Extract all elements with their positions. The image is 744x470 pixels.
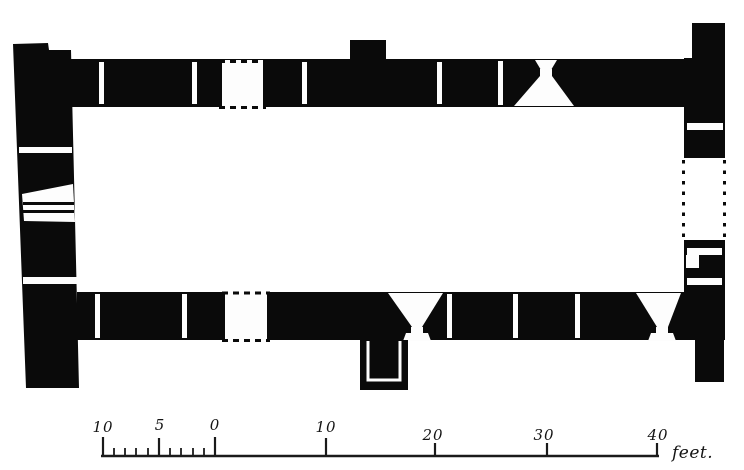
projection-south: [360, 340, 408, 390]
scale-label-30: 30: [533, 426, 554, 444]
corner-southeast: [695, 340, 724, 382]
doorway-west-step-line: [23, 210, 74, 213]
wall-recess: [686, 255, 699, 268]
window-slit: [437, 62, 442, 104]
window-outer-flare: [648, 333, 676, 341]
scale-bar: 10 5 0 10 20 30 40 feet.: [92, 416, 713, 463]
doorway-north-opening: [222, 60, 263, 108]
window-slit: [513, 294, 518, 338]
window-slit: [95, 294, 100, 338]
scale-label-10-right: 10: [315, 418, 336, 436]
window-slit: [182, 294, 187, 338]
window-slit: [19, 147, 72, 153]
window-neck: [411, 327, 423, 333]
building-plan: [13, 23, 725, 390]
window-slit: [687, 248, 722, 255]
doorway-north-blocked: [219, 60, 266, 108]
east-opening-dashed: [684, 160, 725, 240]
window-slit: [302, 62, 307, 104]
wall-north: [66, 40, 684, 108]
window-slit: [192, 62, 197, 104]
window-slit: [23, 277, 77, 284]
window-slit: [447, 294, 452, 338]
scanned-plan-page: 10 5 0 10 20 30 40 feet.: [0, 0, 744, 470]
scale-unit-label: feet.: [670, 443, 713, 463]
window-neck: [656, 327, 668, 333]
scale-label-5: 5: [155, 416, 166, 434]
doorway-south-blocked: [222, 292, 270, 341]
window-neck: [540, 69, 552, 76]
wall-east-upper-masonry: [684, 58, 725, 158]
window-slit: [575, 294, 580, 338]
corner-northeast-buttress: [692, 23, 725, 59]
doorway-west-step-line: [23, 202, 74, 205]
buttress-north: [350, 40, 386, 60]
window-slit: [687, 123, 723, 130]
wall-north-masonry: [66, 59, 684, 107]
doorway-south-opening: [225, 292, 267, 340]
window-slit: [99, 62, 104, 104]
scale-label-20: 20: [421, 426, 443, 444]
scale-label-40: 40: [646, 426, 668, 444]
wall-east-upper: [684, 23, 725, 158]
floor-plan: 10 5 0 10 20 30 40 feet.: [0, 0, 744, 470]
wall-south-masonry: [77, 292, 695, 340]
window-slit: [687, 278, 722, 285]
window-outer-flare: [403, 333, 431, 341]
window-slit: [498, 61, 503, 105]
wall-south: [77, 292, 695, 341]
scale-label-10-left: 10: [92, 418, 113, 436]
scale-label-0: 0: [210, 416, 221, 434]
